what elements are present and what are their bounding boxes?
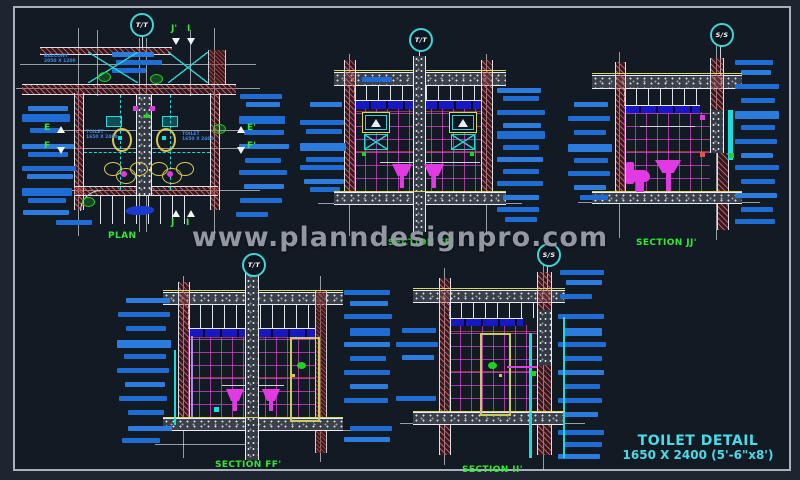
annotation-label-bar	[396, 396, 436, 401]
detail-callout-icon: S/S	[710, 23, 734, 47]
annotation-label-bar	[564, 356, 602, 361]
wall-left	[439, 278, 451, 455]
duct-shaft-column	[245, 272, 259, 460]
annotation-label-bar	[27, 174, 73, 179]
switch-point	[470, 152, 474, 156]
section-arrow-icon	[172, 210, 180, 217]
annotation-label-bar	[350, 356, 386, 361]
detail-callout-icon: T/T	[130, 13, 154, 37]
wc-cistern	[626, 162, 634, 184]
ceiling-hangers	[449, 301, 537, 318]
floor-trap-fixture	[176, 162, 194, 176]
section-letter-f: F	[44, 141, 50, 151]
section-arrow-icon	[172, 38, 180, 45]
annotation-label-bar	[560, 294, 592, 299]
switch-point	[531, 371, 536, 376]
annotation-label-bar	[362, 77, 392, 82]
fixture-tag-icon	[150, 74, 163, 84]
annotation-label-bar	[300, 143, 346, 151]
annotation-label-bar	[402, 328, 436, 333]
annotation-label-bar	[564, 442, 602, 447]
annotation-label-bar	[735, 60, 773, 65]
floor-finish-line	[592, 191, 742, 192]
annotation-label-bar	[306, 129, 342, 134]
pipe-riser-line	[191, 336, 193, 418]
annotation-label-bar	[497, 110, 545, 115]
ceiling-finish-line	[592, 73, 742, 74]
section-arrow-icon	[57, 147, 65, 154]
pipe-point	[150, 106, 155, 111]
annotation-label-bar	[568, 144, 612, 152]
counter-line	[380, 162, 480, 163]
annotation-label-bar	[344, 370, 390, 375]
door-knob-point	[499, 374, 502, 377]
annotation-label-bar	[741, 179, 775, 184]
section-letter-j-top: J'	[171, 24, 177, 34]
floor-trap-fixture	[130, 162, 148, 176]
ceiling-hangers	[624, 87, 702, 105]
section-ff-title: SECTION FF'	[215, 460, 282, 470]
switch-point	[362, 152, 366, 156]
cad-drawing-canvas: T/T	[0, 0, 800, 480]
watermark: www.planndesignpro.com	[0, 222, 800, 253]
section-letter-e: E	[44, 123, 50, 133]
annotation-label-bar	[344, 437, 390, 442]
annotation-label-bar	[124, 354, 166, 359]
door-handle	[297, 362, 306, 369]
annotation-label-bar	[344, 314, 392, 319]
annotation-label-bar	[497, 88, 541, 93]
annotation-label-bar	[126, 298, 170, 303]
annotation-label-bar	[564, 328, 602, 336]
annotation-label-bar	[344, 342, 390, 347]
annotation-label-bar	[564, 384, 600, 389]
shaft-cross-brace	[88, 52, 138, 83]
toilet-right-label: TOILET1650 X 2400	[182, 132, 214, 142]
cistern-fixture	[106, 116, 122, 127]
duct-shaft-column	[413, 56, 426, 232]
annotation-label-bar	[735, 193, 777, 198]
shelf-line	[640, 126, 695, 127]
annotation-label-bar	[503, 195, 539, 200]
annotation-label-bar	[574, 102, 608, 107]
duct-opening	[710, 110, 724, 153]
shaft-cross-brace	[168, 52, 208, 83]
drawing-size: 1650 X 2400 (5'-6"x8')	[612, 449, 784, 462]
pipe-clamp-point	[729, 153, 734, 158]
annotation-label-bar	[503, 145, 539, 150]
toilet-left-label: TOILET1650 X 2400	[86, 130, 118, 140]
floor-finish-line	[334, 191, 506, 192]
ventilation-louver	[451, 134, 475, 150]
annotation-label-bar	[236, 212, 268, 217]
annotation-label-bar	[741, 98, 775, 103]
floor-slab	[592, 192, 742, 204]
annotation-label-bar	[118, 312, 170, 317]
annotation-label-bar	[503, 96, 539, 101]
annotation-label-bar	[497, 131, 545, 139]
annotation-label-bar	[735, 139, 777, 144]
water-pipe-riser	[529, 333, 532, 458]
annotation-label-bar	[125, 382, 165, 387]
annotation-label-bar	[741, 70, 771, 75]
annotation-label-bar	[128, 426, 172, 431]
balcony-label: BALCONY2050 X 1200	[44, 54, 76, 64]
section-letter-f2: F'	[247, 141, 256, 151]
annotation-label-bar	[497, 207, 539, 212]
annotation-label-bar	[497, 181, 543, 186]
annotation-label-bar	[239, 116, 285, 124]
annotation-label-bar	[22, 188, 72, 196]
wc-fixture	[156, 128, 176, 152]
annotation-label-bar	[350, 301, 388, 306]
detail-callout-icon: T/T	[409, 28, 433, 52]
annotation-label-bar	[22, 166, 76, 171]
door-handle	[488, 362, 497, 369]
wall-corner-block	[208, 50, 226, 84]
water-pipe-line	[174, 350, 176, 425]
drain-point	[167, 171, 173, 177]
mirror-fixture	[362, 112, 390, 133]
annotation-label-bar	[503, 169, 539, 174]
annotation-label-bar	[580, 195, 608, 200]
fixture-tag-icon	[82, 197, 95, 207]
annotation-label-bar	[306, 157, 344, 162]
water-pipe-line	[563, 317, 565, 458]
tile-border-band	[449, 318, 523, 326]
wall-right-upper	[537, 272, 552, 310]
annotation-label-bar	[117, 368, 169, 373]
annotation-label-bar	[122, 438, 160, 443]
annotation-label-bar	[558, 342, 606, 347]
annotation-label-bar	[735, 165, 779, 170]
section-arrow-icon	[237, 126, 245, 133]
annotation-label-bar	[574, 158, 608, 163]
toilet-door	[290, 337, 320, 422]
wc-bowl	[634, 170, 650, 182]
annotation-label-bar	[28, 198, 66, 203]
basin-pedestal	[400, 176, 404, 188]
ceiling-finish-line	[413, 288, 565, 289]
annotation-label-bar	[344, 290, 390, 295]
annotation-label-bar	[396, 342, 438, 347]
section-letter-i-top: I	[187, 24, 190, 34]
annotation-label-bar	[246, 102, 280, 107]
tile-border-band	[624, 105, 700, 113]
pipe-point	[700, 115, 705, 120]
wall-right-upper	[710, 58, 724, 110]
annotation-label-bar	[566, 280, 602, 285]
drawing-title: TOILET DETAIL	[612, 433, 784, 449]
annotation-label-bar	[574, 185, 606, 190]
section-arrow-icon	[187, 210, 195, 217]
annotation-label-bar	[741, 125, 775, 130]
ventilation-louver	[364, 134, 388, 150]
annotation-label-bar	[560, 270, 604, 275]
wc-base	[636, 182, 644, 192]
fixture-tag-icon	[98, 72, 111, 82]
annotation-label-bar	[22, 114, 70, 122]
cistern-fixture	[162, 116, 178, 127]
basin-pedestal	[269, 401, 273, 411]
annotation-label-bar	[240, 94, 282, 99]
annotation-label-bar	[240, 198, 282, 203]
annotation-label-bar	[735, 111, 779, 119]
annotation-label-bar	[239, 170, 287, 175]
mirror-fixture	[449, 112, 477, 133]
wall-right-lower	[537, 365, 552, 455]
title-block: TOILET DETAIL 1650 X 2400 (5'-6"x8')	[612, 433, 784, 462]
annotation-label-bar	[568, 116, 610, 121]
door-knob-point	[292, 374, 295, 377]
section-letter-e2: E'	[247, 123, 256, 133]
annotation-label-bar	[350, 384, 388, 389]
dimension-line	[155, 444, 255, 445]
annotation-label-bar	[244, 184, 284, 189]
annotation-label-bar	[28, 106, 68, 111]
valve-point	[700, 152, 705, 157]
annotation-label-bar	[503, 123, 541, 128]
annotation-label-bar	[304, 179, 344, 184]
annotation-label-bar	[574, 130, 606, 135]
wall-right	[481, 60, 493, 203]
section-arrow-icon	[187, 38, 195, 45]
basin-pedestal	[432, 176, 436, 188]
detail-callout-icon: T/T	[242, 253, 266, 277]
annotation-label-bar	[128, 410, 164, 415]
annotation-label-bar	[350, 328, 390, 336]
wall-left	[178, 282, 190, 430]
annotation-label-bar	[564, 412, 598, 417]
annotation-label-bar	[117, 340, 171, 348]
wall-left	[615, 62, 626, 202]
grab-rail-line	[507, 366, 537, 368]
annotation-label-bar	[741, 207, 773, 212]
section-ii-title: SECTION II'	[462, 465, 523, 475]
basin-pedestal	[233, 401, 237, 411]
pipe-point	[133, 106, 138, 111]
annotation-label-bar	[344, 398, 388, 403]
toilet-door	[480, 333, 511, 416]
annotation-label-bar	[350, 426, 392, 431]
annotation-label-bar	[568, 171, 610, 176]
annotation-label-bar	[23, 210, 69, 215]
drain-point	[121, 171, 127, 177]
annotation-label-bar	[126, 326, 166, 331]
annotation-label-bar	[300, 165, 344, 170]
keynote-a-marker	[143, 112, 151, 118]
wall-left	[344, 60, 356, 203]
annotation-label-bar	[402, 355, 434, 360]
wall-top	[22, 84, 236, 95]
section-arrow-icon	[237, 147, 245, 154]
annotation-label-bar	[310, 102, 342, 107]
annotation-label-bar	[300, 120, 344, 125]
annotation-label-bar	[245, 158, 281, 163]
annotation-label-bar	[497, 157, 543, 162]
duct-opening	[537, 310, 552, 365]
floor-trap-point	[214, 407, 219, 412]
annotation-label-bar	[735, 84, 779, 89]
fixture-tag-icon	[213, 124, 226, 134]
annotation-label-bar	[119, 396, 167, 401]
basin-pedestal	[666, 173, 671, 191]
annotation-label-bar	[741, 153, 773, 158]
section-arrow-icon	[57, 126, 65, 133]
